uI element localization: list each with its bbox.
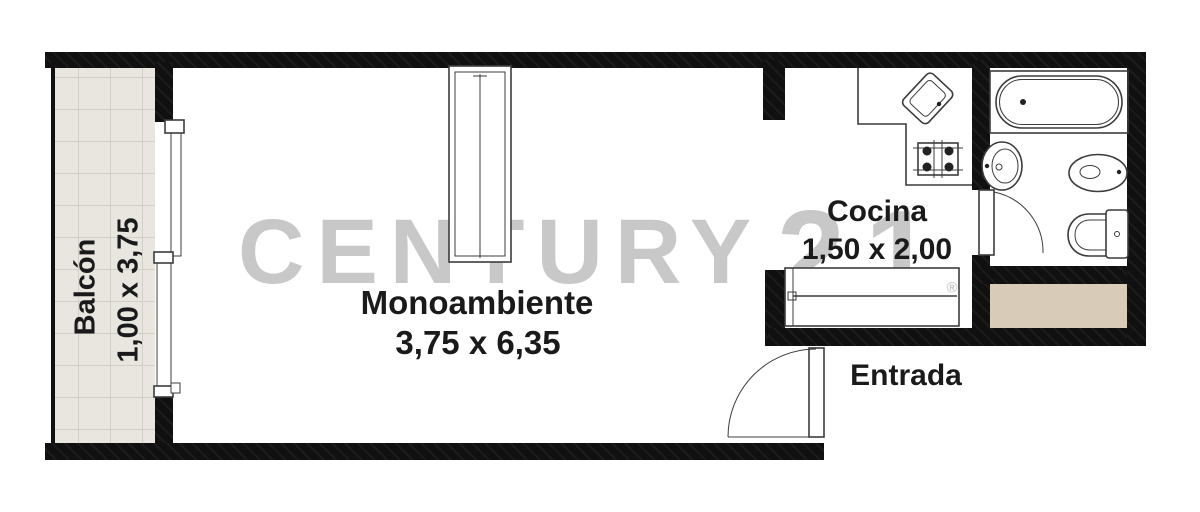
registered-trademark-symbol: ® (946, 280, 957, 297)
kitchen-label: Cocina (827, 195, 927, 229)
entrance-label: Entrada (850, 359, 962, 393)
studio-dims: 3,75 x 6,35 (395, 324, 560, 362)
wardrobe (449, 66, 511, 262)
balcony-dims: 1,00 x 3,75 (113, 217, 146, 362)
floor-plan: CENTURY 21 (0, 0, 1200, 512)
fixtures-layer (0, 0, 1200, 512)
bathroom-door (979, 190, 1043, 255)
balcony-label: Balcón (70, 239, 103, 336)
kitchen-sink-icon (901, 71, 955, 126)
sliding-window-icon (154, 120, 184, 397)
toilet-icon (1068, 210, 1128, 258)
stove-icon (913, 140, 963, 178)
bathtub-icon (990, 71, 1128, 133)
studio-label: Monoambiente (361, 284, 594, 322)
bidet-icon (1069, 155, 1127, 192)
kitchen-counter-low (785, 268, 959, 326)
kitchen-dims: 1,50 x 2,00 (802, 233, 952, 267)
washbasin-icon (982, 142, 1022, 190)
entrance-door (728, 348, 824, 437)
